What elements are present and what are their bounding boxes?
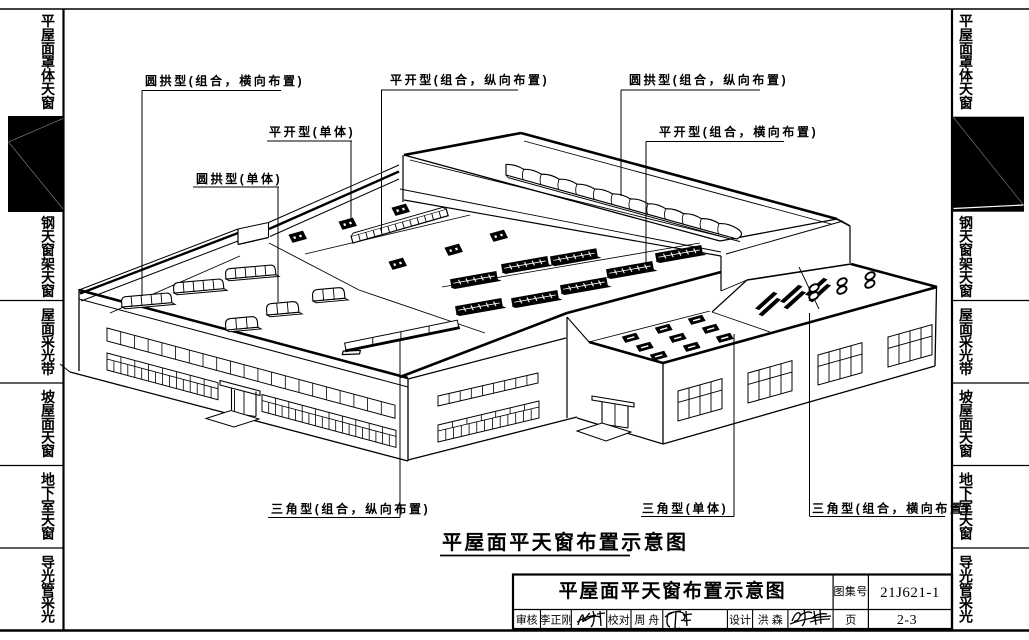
svg-text:审核: 审核 [516,613,538,627]
svg-text:窗: 窗 [959,526,973,542]
svg-text:平屋面平天窗布置示意图: 平屋面平天窗布置示意图 [559,579,787,602]
svg-text:窗: 窗 [41,526,55,542]
svg-text:圆拱型(组合，纵向布置): 圆拱型(组合，纵向布置) [629,72,788,87]
svg-text:窗: 窗 [959,95,973,111]
svg-text:带: 带 [41,361,55,377]
svg-text:图集号: 图集号 [833,584,868,598]
svg-text:页: 页 [845,615,856,627]
svg-text:平开型(组合，横向布置): 平开型(组合，横向布置) [659,124,818,139]
svg-text:三角型(组合，横向布置): 三角型(组合，横向布置) [812,501,971,516]
svg-text:平开型(组合，纵向布置): 平开型(组合，纵向布置) [390,72,549,87]
svg-text:窗: 窗 [41,443,55,459]
svg-text:圆拱型(单体): 圆拱型(单体) [196,171,282,186]
svg-text:窗: 窗 [41,95,55,111]
svg-text:光: 光 [40,609,55,625]
svg-text:窗: 窗 [959,443,973,459]
svg-text:窗: 窗 [959,283,973,299]
svg-text:带: 带 [959,361,973,377]
svg-text:三角型(单体): 三角型(单体) [642,501,728,516]
svg-text:圆拱型(组合，横向布置): 圆拱型(组合，横向布置) [145,73,304,88]
svg-text:周 舟: 周 舟 [634,613,659,627]
svg-text:窗: 窗 [41,283,55,299]
svg-text:三角型(组合，纵向布置): 三角型(组合，纵向布置) [271,501,430,516]
svg-text:光: 光 [958,609,973,625]
svg-text:设计: 设计 [729,614,751,627]
svg-text:2-3: 2-3 [897,613,917,628]
svg-text:21J621-1: 21J621-1 [880,585,940,601]
svg-text:李正刚: 李正刚 [540,613,573,627]
svg-text:洪 森: 洪 森 [758,613,783,627]
svg-text:平屋面平天窗布置示意图: 平屋面平天窗布置示意图 [442,530,688,554]
svg-text:平开型(单体): 平开型(单体) [269,124,355,139]
svg-text:校对: 校对 [608,613,630,627]
